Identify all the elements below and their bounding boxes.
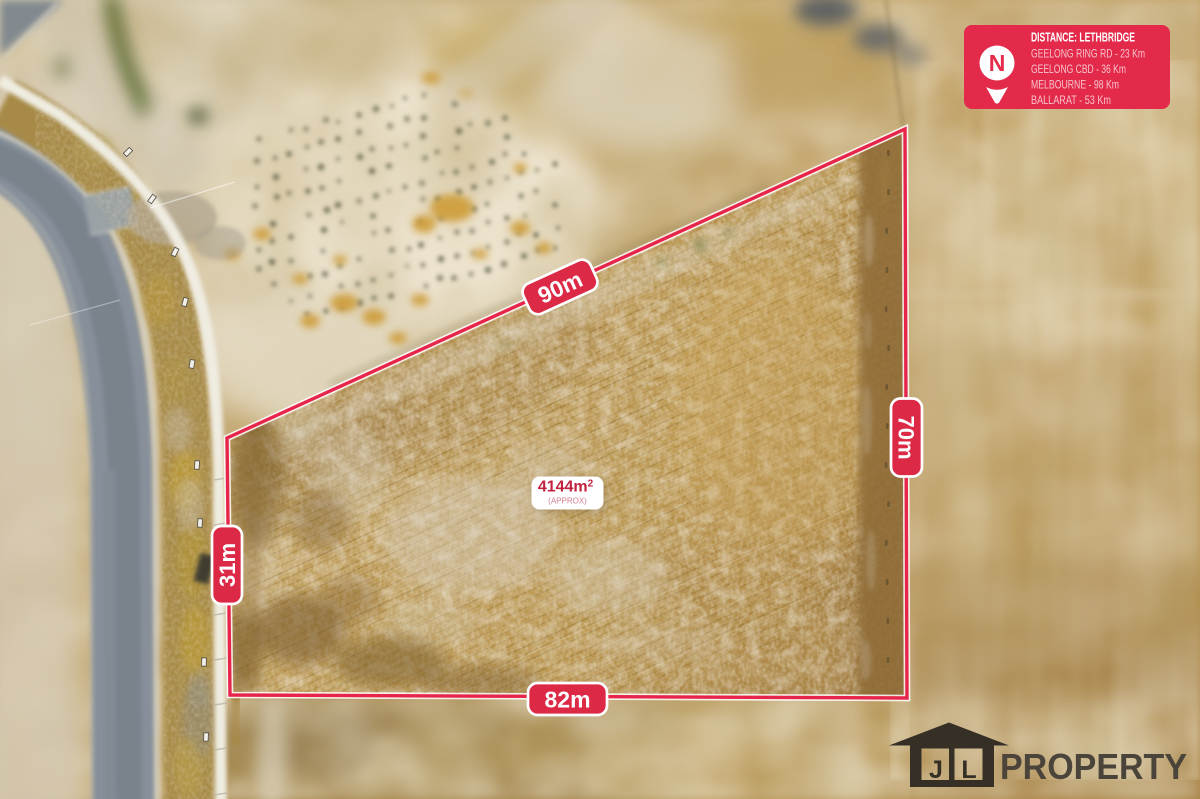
svg-text:N: N bbox=[989, 50, 1006, 76]
svg-text:31m: 31m bbox=[215, 543, 240, 587]
svg-text:BALLARAT - 53 Km: BALLARAT - 53 Km bbox=[1031, 93, 1111, 107]
svg-text:4144m2: 4144m2 bbox=[538, 479, 594, 496]
svg-text:70m: 70m bbox=[894, 415, 919, 459]
svg-text:(APPROX): (APPROX) bbox=[548, 497, 587, 506]
svg-text:L: L bbox=[961, 756, 976, 784]
svg-text:GEELONG RING RD - 23 Km: GEELONG RING RD - 23 Km bbox=[1031, 47, 1145, 61]
svg-text:PROPERTY: PROPERTY bbox=[1000, 746, 1187, 787]
svg-text:J: J bbox=[929, 756, 943, 784]
svg-text:DISTANCE: LETHBRIDGE: DISTANCE: LETHBRIDGE bbox=[1031, 31, 1135, 45]
svg-text:82m: 82m bbox=[544, 686, 590, 712]
svg-text:MELBOURNE - 98 Km: MELBOURNE - 98 Km bbox=[1031, 78, 1119, 92]
svg-text:GEELONG CBD - 36 Km: GEELONG CBD - 36 Km bbox=[1031, 62, 1126, 76]
